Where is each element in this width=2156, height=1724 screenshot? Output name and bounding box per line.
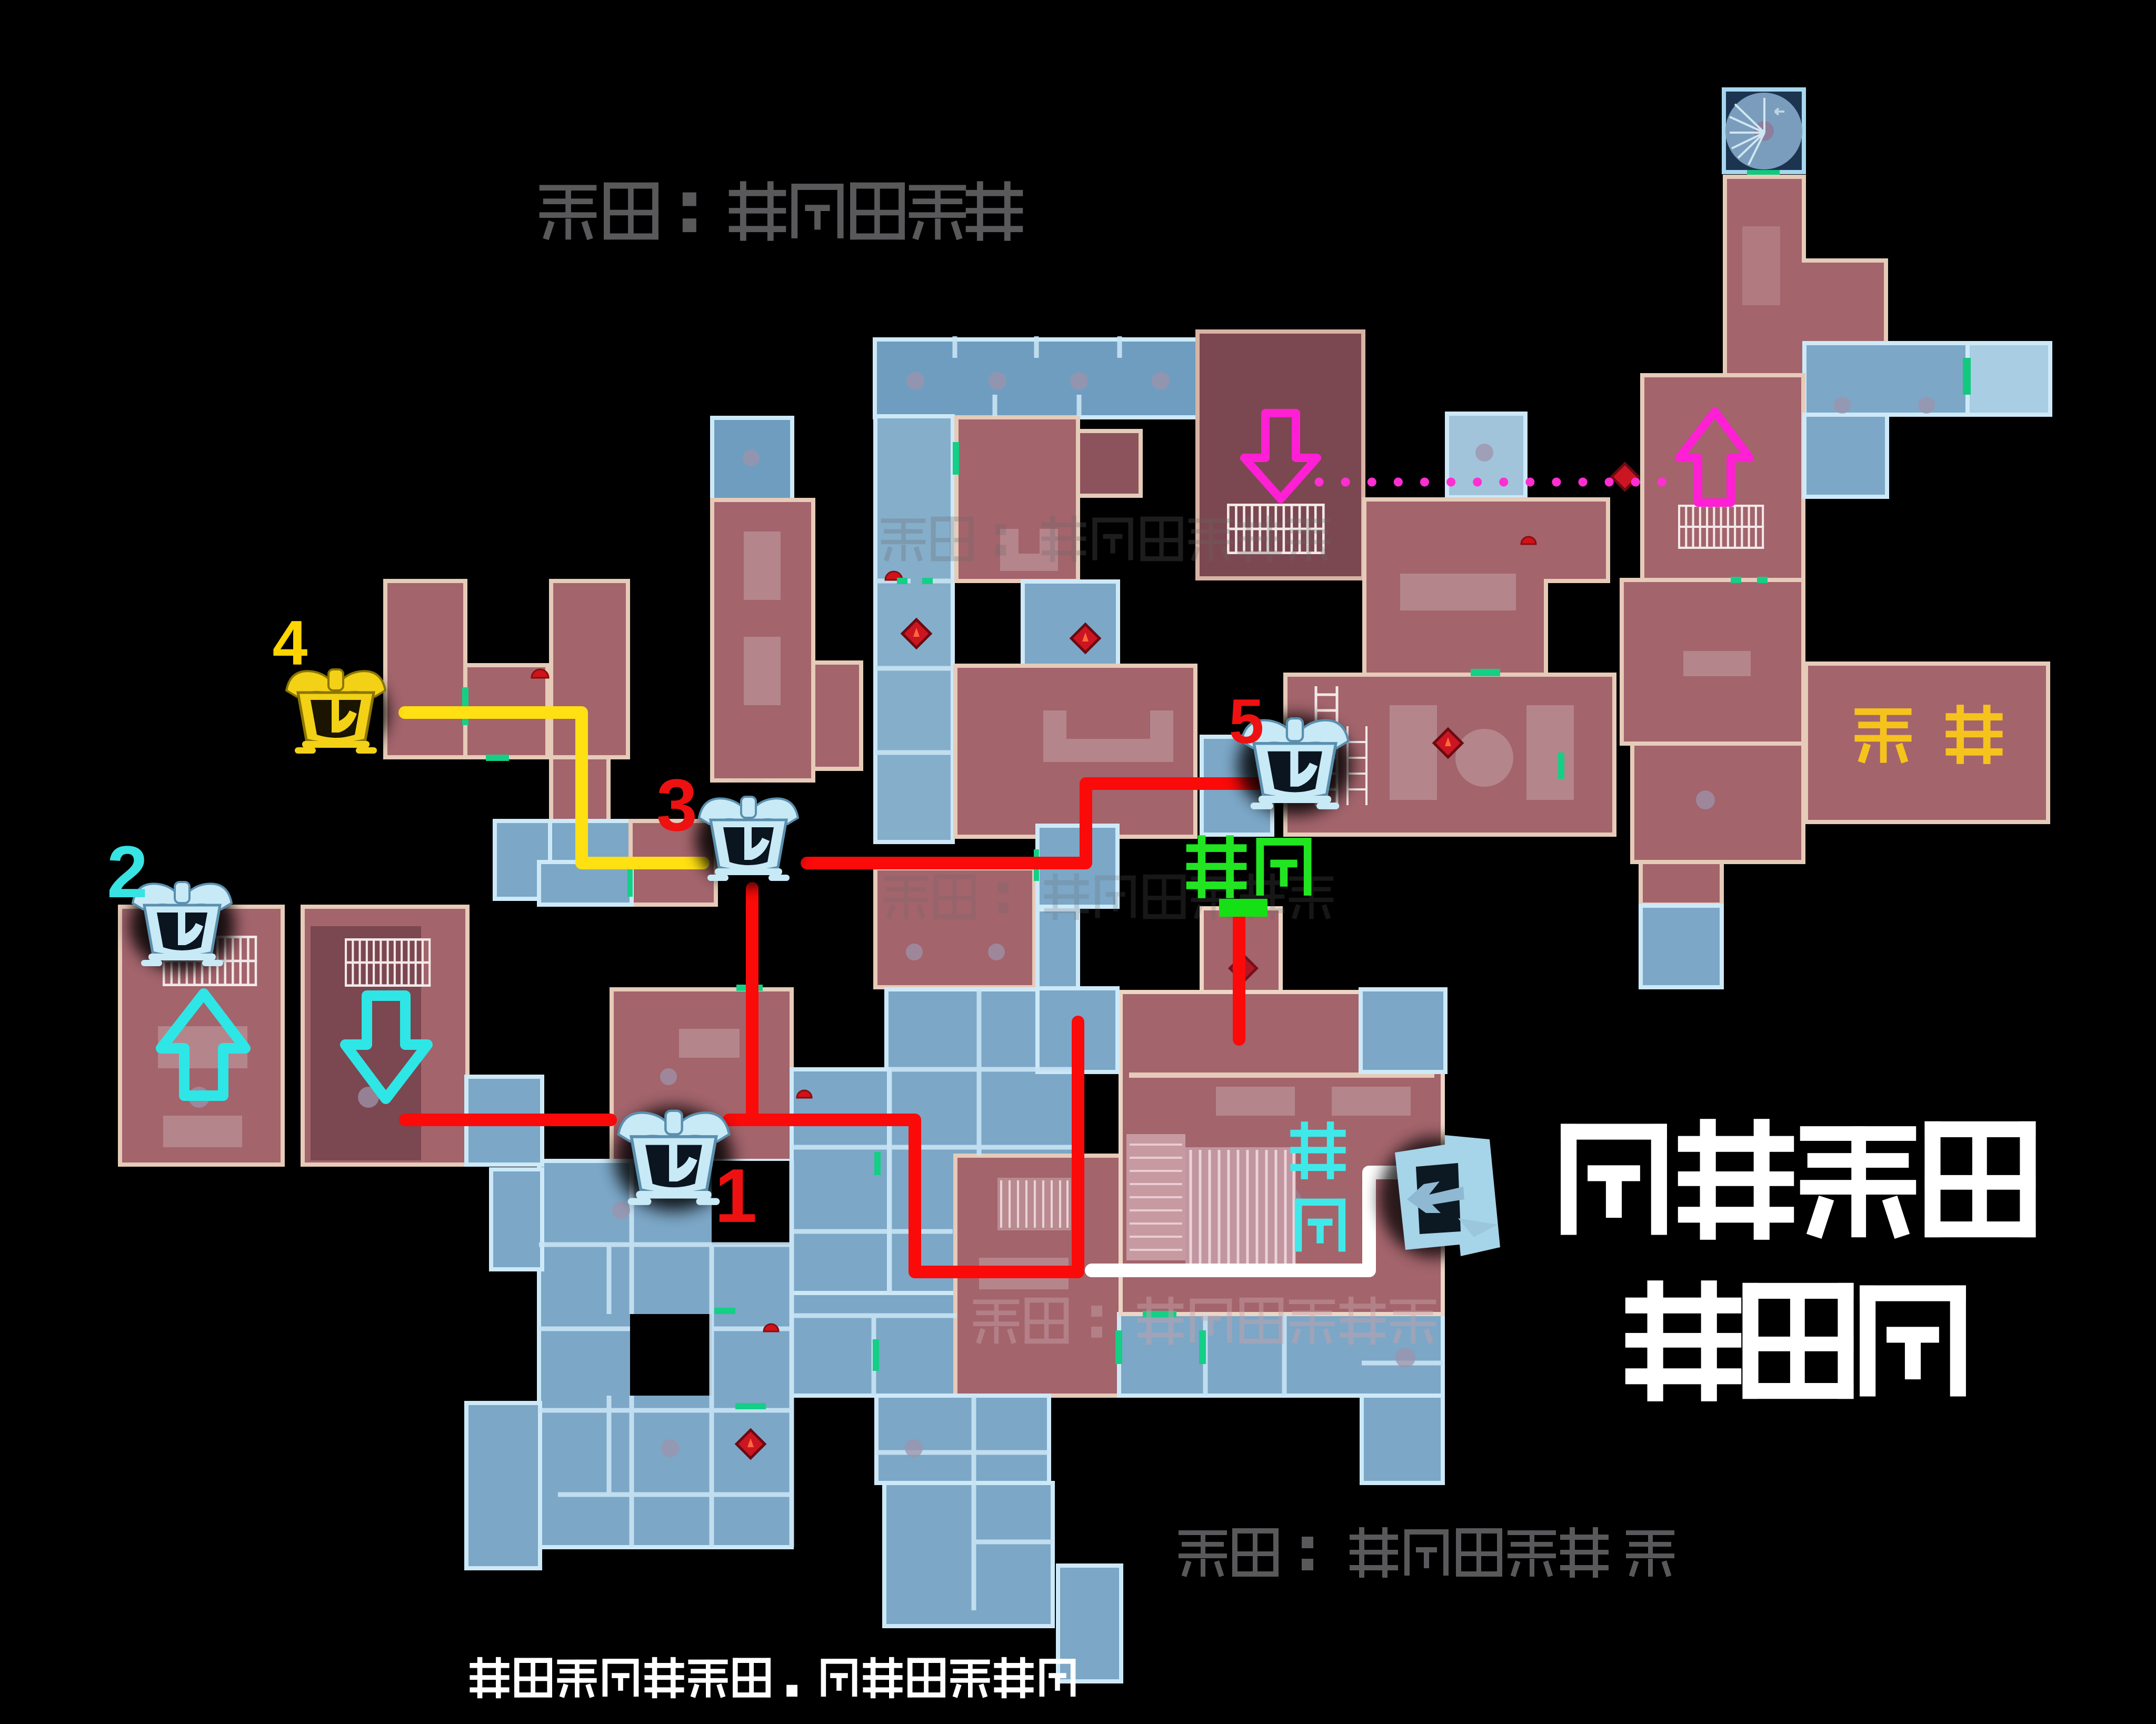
svg-text:3: 3 <box>656 764 697 846</box>
svg-text:1: 1 <box>715 1153 757 1238</box>
svg-text:2: 2 <box>107 830 148 913</box>
svg-text:5: 5 <box>1229 686 1264 757</box>
svg-text:4: 4 <box>273 608 308 678</box>
